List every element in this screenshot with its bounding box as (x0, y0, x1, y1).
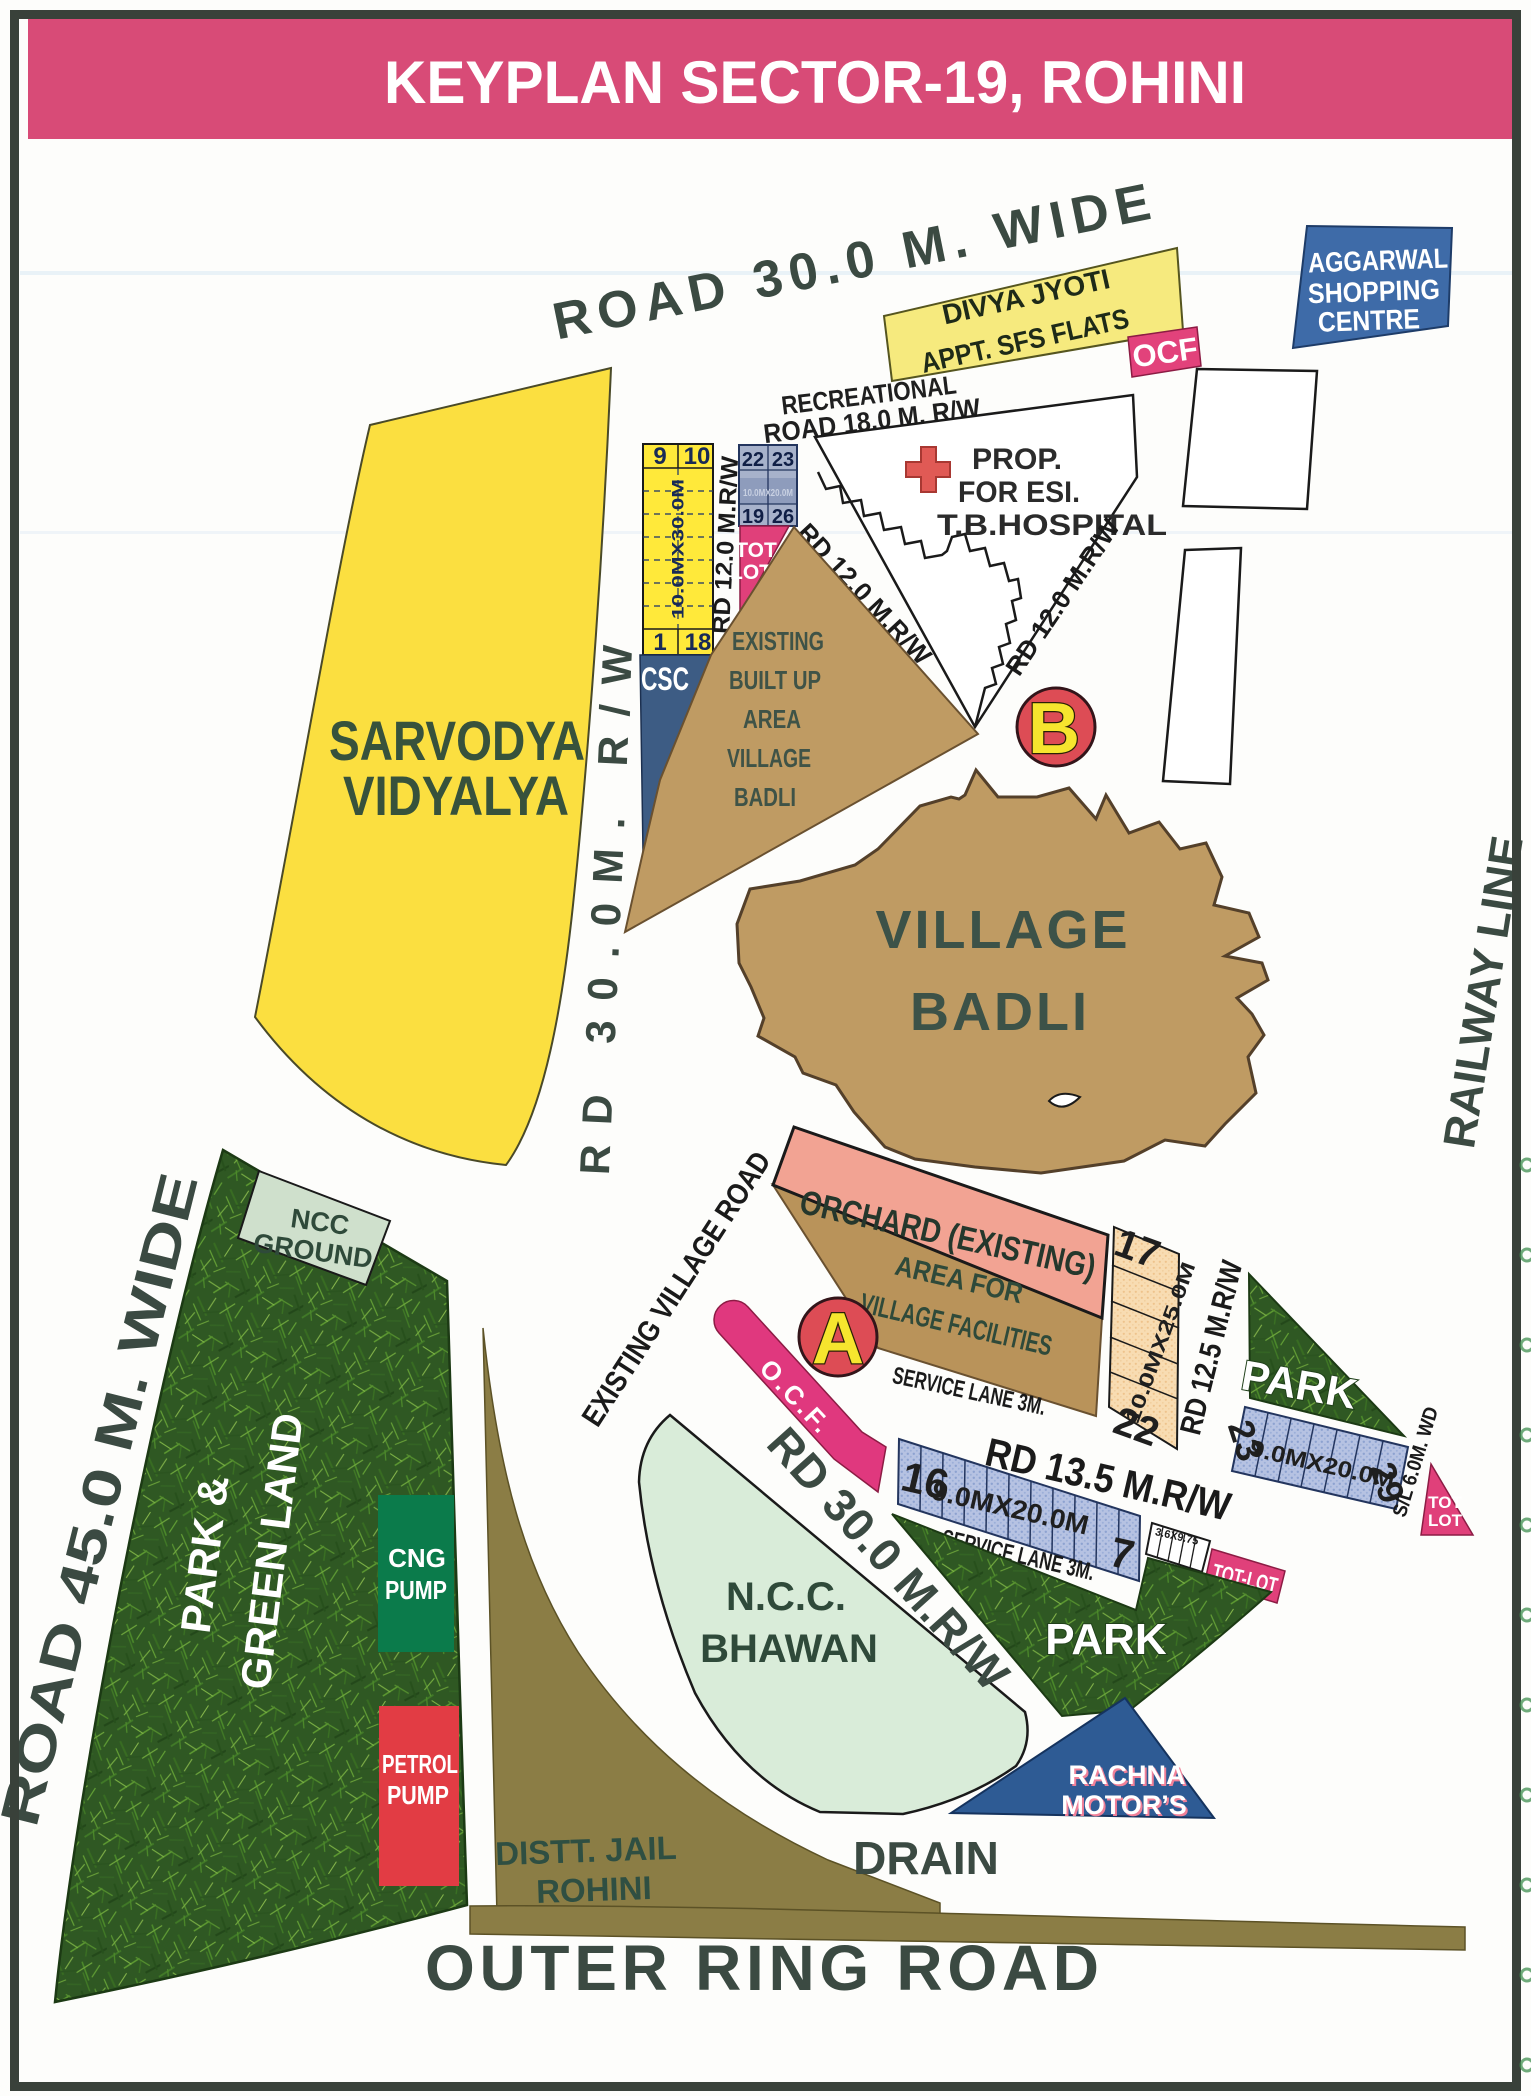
svg-text:CNG: CNG (388, 1543, 446, 1573)
svg-text:BUILT UP: BUILT UP (729, 665, 821, 695)
svg-text:PUMP: PUMP (387, 1780, 449, 1810)
svg-text:RACHNA: RACHNA (1069, 1760, 1186, 1790)
svg-text:PARK: PARK (1045, 1615, 1167, 1664)
svg-text:23: 23 (772, 449, 794, 471)
svg-text:AGGARWAL: AGGARWAL (1307, 243, 1448, 279)
svg-text:T.B.HOSPITAL: T.B.HOSPITAL (937, 509, 1167, 542)
svg-text:BADLI: BADLI (910, 982, 1090, 1042)
svg-text:26: 26 (772, 506, 794, 528)
svg-text:9: 9 (653, 443, 666, 470)
svg-text:10.0MX20.0M: 10.0MX20.0M (743, 488, 793, 499)
svg-text:CSC: CSC (641, 661, 689, 697)
svg-text:22: 22 (742, 449, 764, 471)
svg-text:AREA: AREA (743, 704, 801, 734)
svg-text:PUMP: PUMP (385, 1575, 447, 1605)
svg-text:B: B (1028, 689, 1080, 769)
svg-text:VILLAGE: VILLAGE (727, 743, 811, 773)
svg-text:N.C.C.: N.C.C. (726, 1575, 846, 1619)
svg-text:A: A (812, 1299, 864, 1379)
svg-text:TOT: TOT (735, 539, 777, 562)
svg-text:10: 10 (684, 443, 711, 470)
svg-text:TOT: TOT (1428, 1493, 1462, 1512)
svg-text:BHAWAN: BHAWAN (700, 1627, 878, 1671)
svg-text:FOR ESI.: FOR ESI. (958, 476, 1080, 509)
svg-text:19: 19 (742, 506, 764, 528)
svg-text:CENTRE: CENTRE (1317, 303, 1420, 338)
svg-text:MOTOR’S: MOTOR’S (1061, 1790, 1187, 1820)
svg-text:10.0MX30.0M: 10.0MX30.0M (669, 479, 688, 619)
svg-text:1: 1 (653, 629, 666, 656)
svg-text:EXISTING: EXISTING (732, 626, 824, 656)
svg-text:PROP.: PROP. (972, 443, 1062, 476)
svg-text:PETROL: PETROL (382, 1749, 458, 1779)
svg-text:ROHINI: ROHINI (536, 1869, 653, 1910)
svg-text:DISTT. JAIL: DISTT. JAIL (495, 1829, 678, 1872)
svg-text:VIDYALYA: VIDYALYA (343, 764, 569, 827)
svg-text:BADLI: BADLI (734, 782, 796, 812)
svg-text:VILLAGE: VILLAGE (875, 900, 1130, 960)
svg-text:LOT: LOT (1428, 1511, 1463, 1530)
svg-text:SARVODYA: SARVODYA (329, 709, 585, 772)
svg-text:DRAIN: DRAIN (853, 1832, 999, 1884)
svg-text:KEYPLAN SECTOR-19, ROHINI: KEYPLAN SECTOR-19, ROHINI (384, 49, 1246, 116)
